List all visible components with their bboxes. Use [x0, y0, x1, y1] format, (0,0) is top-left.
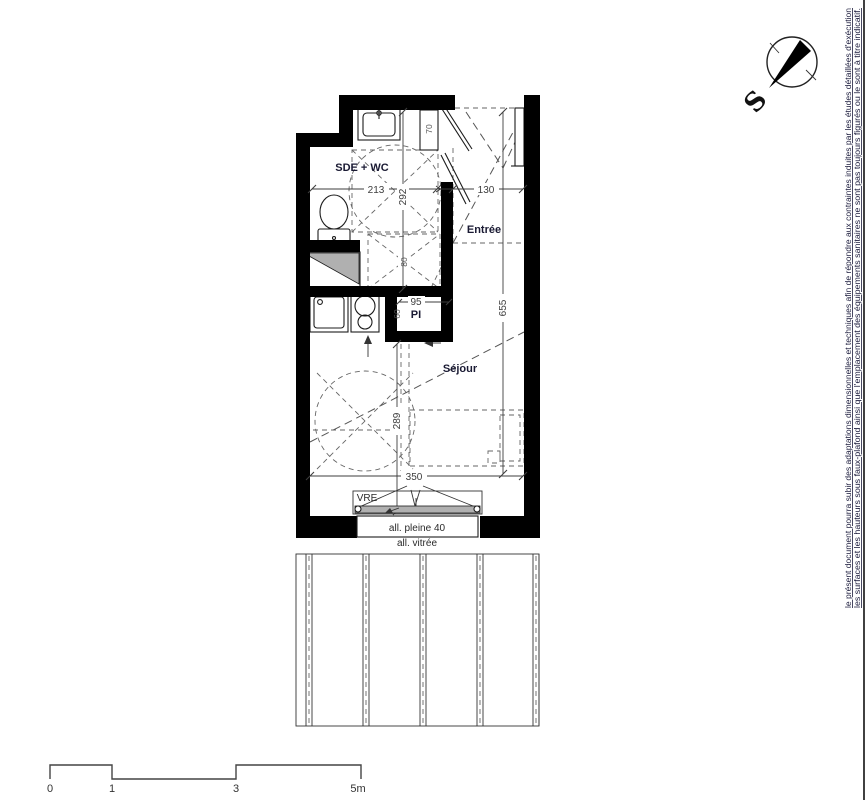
sill-glazed-label: all. vitrée — [397, 538, 437, 549]
dim-655: 655 — [498, 299, 509, 316]
dim-213: 213 — [368, 185, 385, 196]
scale-tick-0: 0 — [47, 783, 53, 795]
dim-350: 350 — [406, 472, 423, 483]
washbasin — [358, 108, 400, 140]
dim-289: 289 — [392, 412, 403, 429]
dim-292: 292 — [398, 188, 409, 205]
sill-solid-label: all. pleine 40 — [389, 523, 446, 534]
entrance-label: Entrée — [467, 224, 501, 236]
bathroom-label: SDE + WC — [335, 162, 389, 174]
kitchen-sink — [310, 293, 348, 332]
door-width-label: 70 — [424, 124, 434, 134]
floor-plan-sheet: 80 — [0, 0, 867, 800]
disclaimer-line-2: les surfaces et les hauteurs sous faux-p… — [853, 8, 862, 608]
floor-plan-drawing: 80 — [0, 0, 867, 800]
shutter-label: VRE — [357, 493, 378, 504]
dim-130: 130 — [478, 185, 495, 196]
toilet — [318, 195, 350, 247]
living-room-label: Séjour — [443, 363, 478, 375]
closet-label: PI — [411, 309, 421, 321]
dim-60: 60 — [392, 309, 402, 319]
disclaimer-line-1: le présent document pourra subir des ada… — [844, 8, 853, 608]
scale-tick-1: 1 — [109, 783, 115, 795]
vanity-counter — [308, 252, 360, 288]
shower-dim-label: 80 — [399, 257, 409, 267]
scale-tick-3: 3 — [233, 783, 239, 795]
glazing-band — [355, 506, 480, 513]
cooktop — [351, 291, 379, 332]
dim-95: 95 — [410, 297, 422, 308]
scale-tick-5m: 5m — [350, 783, 365, 795]
door-width-stub: 70 — [420, 110, 438, 150]
